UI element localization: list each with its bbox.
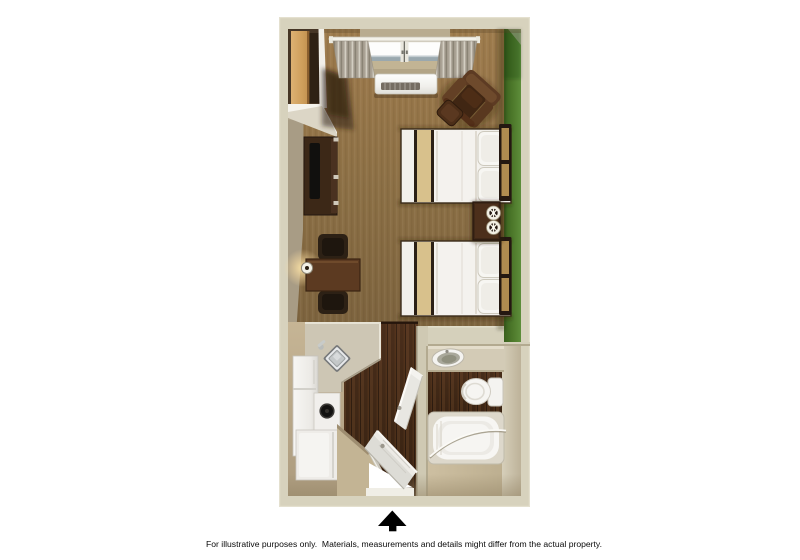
svg-text:For illustrative purposes only: For illustrative purposes only. Material… xyxy=(206,539,602,549)
